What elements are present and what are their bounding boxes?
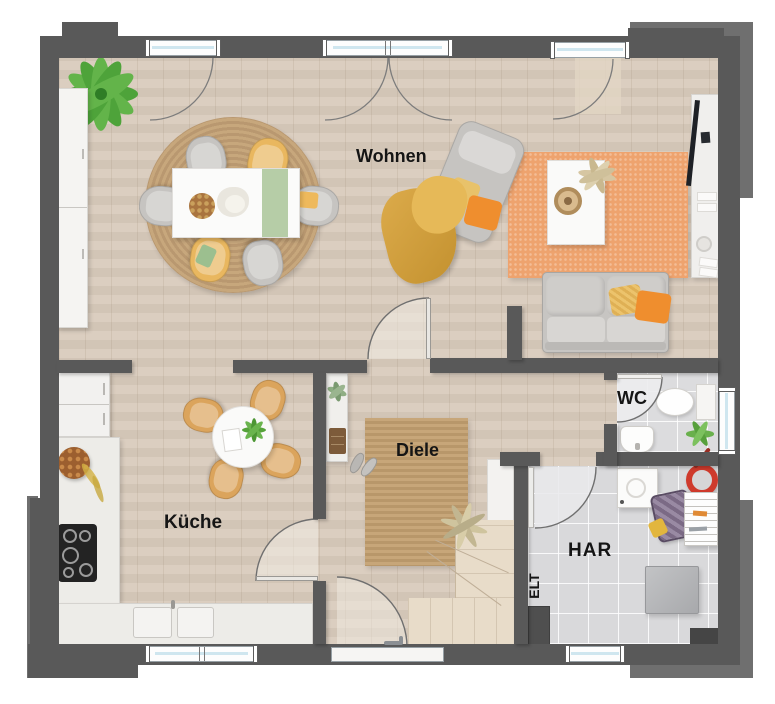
wall-wc-west-b (604, 424, 617, 466)
wall-wohnen-kueche-b (233, 360, 367, 373)
outer-wall-left (40, 36, 59, 506)
corner-block (628, 28, 724, 58)
room-label-kueche: Küche (164, 512, 222, 534)
window-wc (719, 388, 735, 454)
room-label-har: HAR (568, 540, 612, 562)
window-wohnen-left (146, 40, 220, 56)
corner-block-bl (28, 644, 138, 678)
wall-wohnen-kueche-a (57, 360, 132, 373)
outer-wall-right (718, 36, 740, 665)
room-label-wc: WC (617, 388, 647, 409)
wall-kueche-diele (313, 373, 326, 519)
outer-wall-left-low (30, 498, 59, 648)
room-label-diele: Diele (396, 440, 439, 461)
door-leaf-kueche (256, 576, 318, 581)
room-label-wohnen: Wohnen (356, 146, 427, 167)
wall-pillar (507, 306, 522, 360)
door-leaf-wohnen (426, 298, 431, 359)
door-swing-arcs (0, 0, 775, 704)
floor-plan: Wohnen Küche Diele WC HAR ELT (0, 0, 775, 704)
wall-har-north-west (500, 452, 540, 466)
window-har (566, 646, 624, 662)
wall-wc-west-a (604, 373, 617, 380)
corner-pillar (62, 22, 118, 58)
window-kueche (146, 646, 257, 662)
wall-diele-har (514, 452, 528, 644)
entrance-door (331, 647, 444, 662)
wall-wohnen-south (430, 358, 718, 373)
door-handle (399, 636, 403, 645)
wall-kueche-diele-low (313, 581, 326, 644)
window-wohnen-right (551, 42, 629, 58)
door-leaf-wc (617, 374, 662, 379)
window-wohnen-center (323, 40, 452, 56)
room-label-elt: ELT (526, 560, 542, 612)
door-leaf-har (528, 467, 534, 528)
